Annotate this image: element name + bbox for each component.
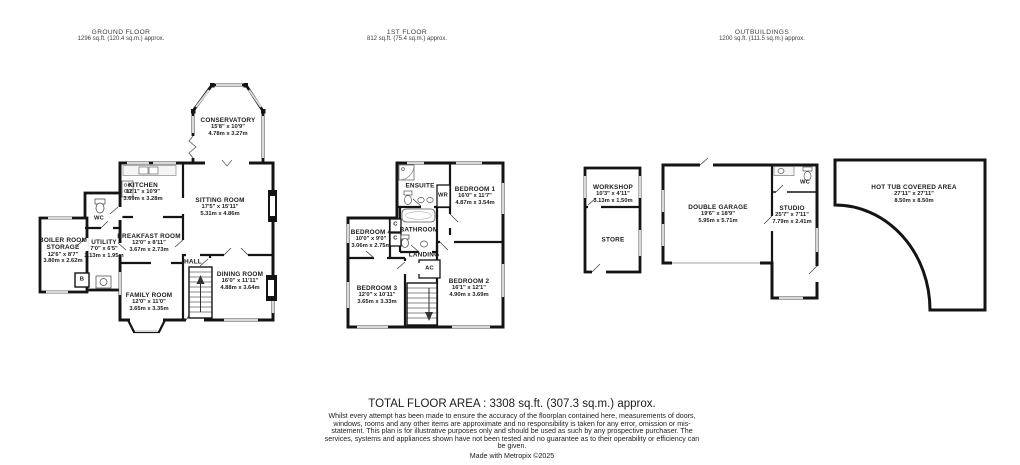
- label-cupboard-1: C: [393, 222, 397, 229]
- room-label-bedroom2: BEDROOM 2 16'1" x 12'1" 4.90m x 3.69m: [449, 278, 490, 298]
- room-label-workshop: WORKSHOP 10'3" x 4'11" 3.13m x 1.50m: [593, 184, 633, 204]
- label-boiler-b: B: [80, 277, 84, 284]
- room-label-dining-room: DINING ROOM 16'0" x 11'11" 4.88m x 3.64m: [217, 271, 263, 291]
- ground-floor-area: 1296 sq.ft. (120.4 sq.m.) approx.: [78, 36, 165, 42]
- metropix-credit: Made with Metropix ©2025: [302, 452, 722, 460]
- room-label-utility: UTILITY 7'0" x 6'5" 2.13m x 1.95m: [84, 239, 123, 259]
- room-label-hot-tub: HOT TUB COVERED AREA 27'11" x 27'11" 8.5…: [871, 184, 956, 204]
- disclaimer-text: Whilst every attempt has been made to en…: [322, 413, 702, 451]
- room-label-family-room: FAMILY ROOM 12'0" x 11'0" 3.65m x 3.35m: [126, 292, 173, 312]
- first-floor-area: 812 sq.ft. (75.4 sq.m.) approx.: [367, 36, 447, 42]
- kitchen-counter: [123, 166, 176, 176]
- room-label-studio: STUDIO 25'7" x 7'11" 7.79m x 2.41m: [772, 205, 811, 225]
- room-label-ensuite: ENSUITE: [405, 182, 434, 189]
- outbuildings-plan: [585, 158, 985, 310]
- room-label-store: STORE: [602, 236, 625, 243]
- room-label-wc-ground: WC: [94, 216, 104, 223]
- room-label-conservatory: CONSERVATORY 15'8" x 10'9" 4.78m x 3.27m: [201, 117, 256, 137]
- outbuildings-header: OUTBUILDINGS 1200 sq.ft. (111.5 sq.m.) a…: [719, 29, 805, 42]
- garage-studio-outline: [663, 165, 817, 298]
- floorplan-page: GROUND FLOOR 1296 sq.ft. (120.4 sq.m.) a…: [0, 0, 1020, 465]
- room-label-double-garage: DOUBLE GARAGE 19'6" x 18'9" 5.95m x 5.71…: [688, 204, 747, 224]
- ground-floor-header: GROUND FLOOR 1296 sq.ft. (120.4 sq.m.) a…: [78, 29, 165, 42]
- wc-toilet-icon: [95, 199, 105, 213]
- label-airing-cupboard: AC: [425, 266, 434, 273]
- footer: TOTAL FLOOR AREA : 3308 sq.ft. (307.3 sq…: [302, 398, 722, 460]
- room-label-breakfast-room: BREAKFAST ROOM 12'0" x 8'11" 3.67m x 2.7…: [117, 233, 181, 253]
- label-cupboard-2: C: [393, 236, 397, 243]
- room-label-bedroom4: BEDROOM 4 10'0" x 9'0" 3.06m x 2.75m: [351, 229, 392, 249]
- hot-tub-area-outline: [835, 160, 985, 310]
- ground-stairs: [189, 267, 212, 318]
- conservatory-vent-gap: [191, 136, 194, 158]
- room-label-wr: WR: [438, 193, 448, 200]
- room-label-bedroom3: BEDROOM 3 12'0" x 10'11" 3.65m x 3.33m: [357, 285, 398, 305]
- ground-floor-title: GROUND FLOOR: [78, 29, 165, 36]
- first-stairs: [407, 283, 437, 325]
- room-label-sitting-room: SITTING ROOM 17'5" x 15'11" 5.31m x 4.86…: [195, 197, 244, 217]
- room-label-wc-studio: WC: [800, 180, 810, 187]
- room-label-kitchen: KITCHEN 12'1" x 10'9" 3.69m x 3.28m: [123, 182, 162, 202]
- first-floor-title: 1ST FLOOR: [367, 29, 447, 36]
- outbuildings-title: OUTBUILDINGS: [719, 29, 805, 36]
- room-label-bathroom: BATHROOM: [400, 226, 439, 233]
- room-label-boiler-room: BOILER ROOM STORAGE 12'6" x 8'7" 3.80m x…: [39, 237, 87, 265]
- room-label-landing: LANDING: [409, 251, 440, 258]
- total-floor-area: TOTAL FLOOR AREA : 3308 sq.ft. (307.3 sq…: [302, 398, 722, 410]
- outbuildings-area: 1200 sq.ft. (111.5 sq.m.) approx.: [719, 36, 805, 42]
- room-label-bedroom1: BEDROOM 1 16'0" x 11'7" 4.87m x 3.54m: [455, 186, 496, 206]
- room-label-hall: HALL: [184, 258, 202, 265]
- utility-appliance-icon: [96, 276, 111, 288]
- first-floor-header: 1ST FLOOR 812 sq.ft. (75.4 sq.m.) approx…: [367, 29, 447, 42]
